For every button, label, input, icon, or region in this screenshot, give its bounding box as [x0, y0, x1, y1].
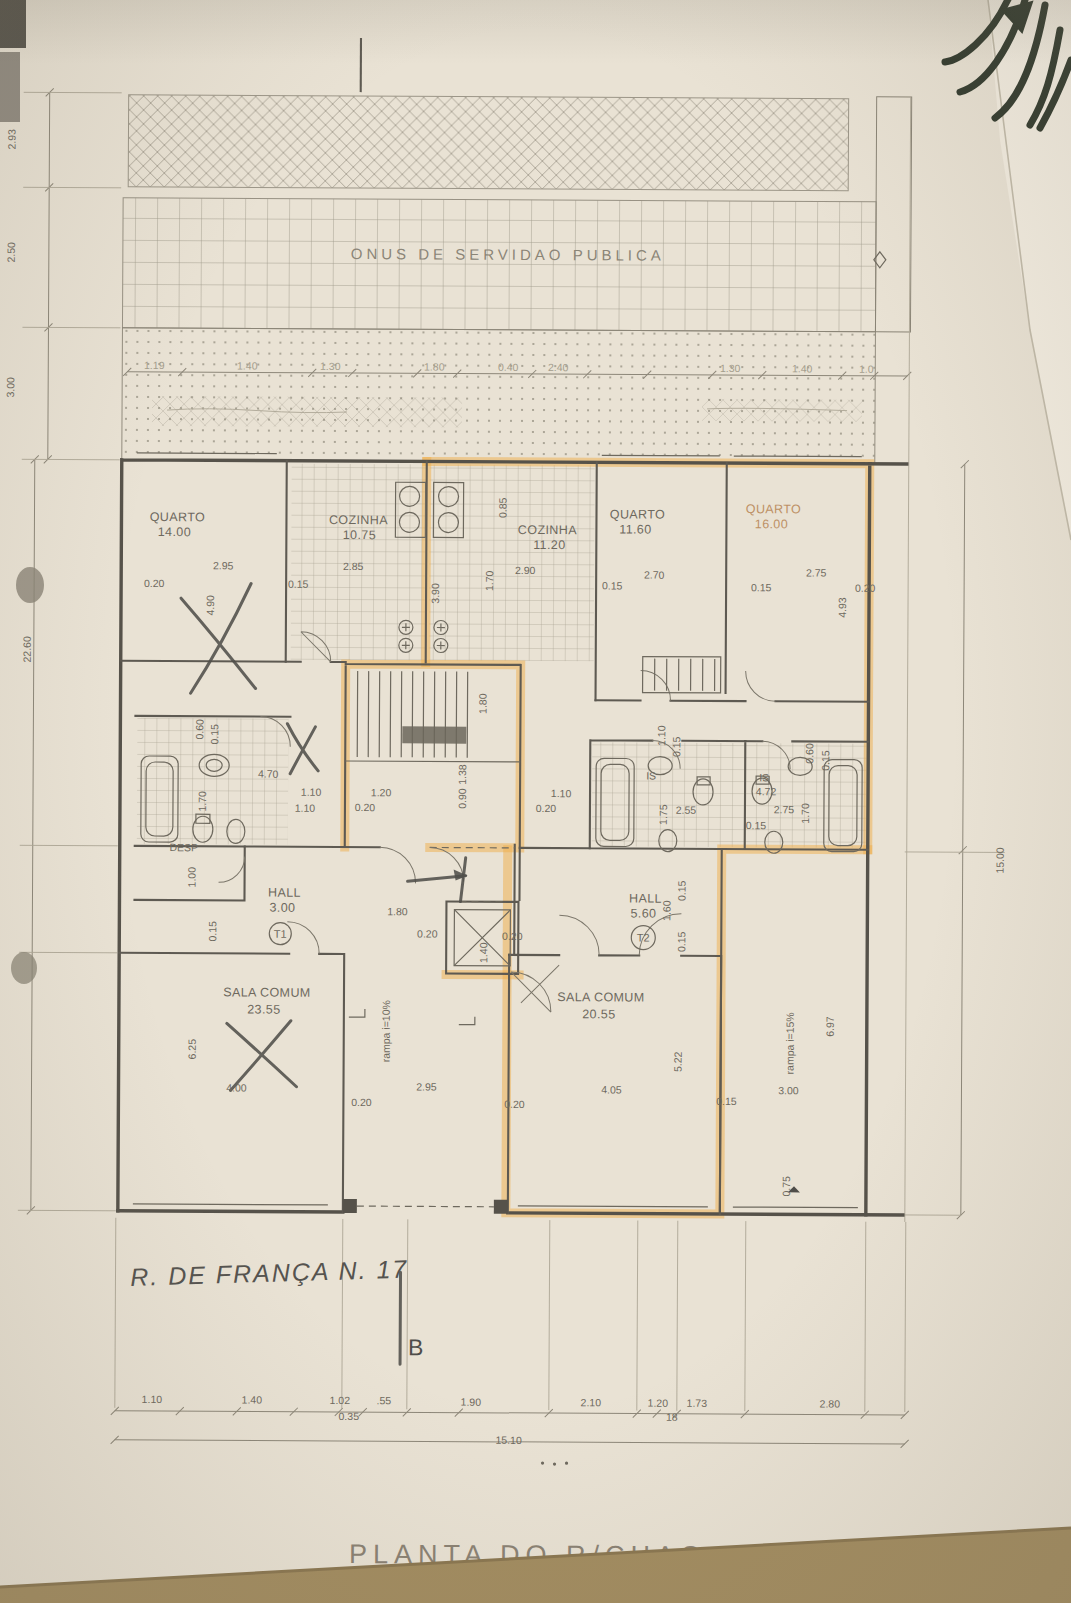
- stair-core: [345, 671, 520, 762]
- dim-label: 1.30: [320, 360, 341, 372]
- dim-label: 0.20: [355, 801, 376, 813]
- dim-label: 3.00: [4, 377, 16, 398]
- room-area: 5.60: [630, 907, 656, 921]
- dim-label: 0.15: [675, 880, 687, 901]
- dim-label: 0.20: [417, 927, 438, 939]
- dim-label: 1.10: [551, 787, 572, 799]
- room-area: 3.00: [269, 901, 295, 915]
- dim-label: 0.20: [855, 582, 876, 594]
- dim-label: 0.15: [716, 1095, 737, 1107]
- room-area: 14.00: [158, 525, 191, 539]
- dim-label: 0.15: [751, 581, 772, 593]
- dim-label: 0.15: [288, 578, 309, 590]
- dim-label: 0.40: [498, 361, 519, 373]
- dim-label: 1.80: [387, 905, 408, 917]
- dim-label: 1.0: [859, 363, 874, 375]
- dim-label: 0.60: [803, 743, 815, 764]
- dim-label: 3.00: [778, 1084, 799, 1096]
- dim-label: 0.15: [675, 931, 687, 952]
- dim-label: 0.20: [536, 802, 557, 814]
- dim-label: 1.90: [461, 1396, 482, 1408]
- room-name: COZINHA: [518, 523, 577, 537]
- room-area: 10.75: [343, 528, 376, 542]
- dim-label: 1.38: [456, 764, 468, 785]
- total-width-dimension: 15.10: [495, 1434, 521, 1446]
- floor-plan-photo: ONUS DE SERVIDAO PUBLICA QUARTO 14.00 CO…: [0, 0, 1071, 1603]
- dim-label: 1.70: [799, 803, 811, 824]
- room-name: QUARTO: [610, 507, 665, 521]
- room-area: 16.00: [755, 517, 788, 531]
- room-area: 20.55: [582, 1007, 615, 1021]
- room-name: DESP: [169, 841, 198, 853]
- dim-label: 0.35: [339, 1410, 360, 1422]
- dim-label: 0.15: [206, 921, 218, 942]
- dim-label: 1.20: [371, 786, 392, 798]
- dim-label: 0.20: [504, 1098, 525, 1110]
- dim-label: 1.00: [186, 867, 198, 888]
- dim-label: 2.10: [581, 1396, 602, 1408]
- dim-label: 1.80: [424, 360, 445, 372]
- dim-label: 0.75: [780, 1176, 792, 1197]
- dim-label: 2.75: [774, 803, 795, 815]
- dim-label: 0.20: [351, 1096, 372, 1108]
- room-name: IS: [646, 770, 656, 782]
- pencil-marks: [177, 583, 469, 1364]
- dim-label: 1.40: [242, 1393, 263, 1405]
- dim-label: 2.40: [548, 361, 569, 373]
- dim-label: 2.55: [676, 804, 697, 816]
- dim-label: 5.22: [672, 1051, 684, 1072]
- dim-label: 2.95: [416, 1080, 437, 1092]
- room-name: SALA COMUM: [557, 990, 644, 1004]
- dim-label: 1.40: [237, 359, 258, 371]
- dim-label: 4.93: [836, 597, 848, 618]
- stray-dots: [541, 1461, 568, 1465]
- ramp-label: rampa i=10%: [380, 1000, 392, 1062]
- dim-label: 1.75: [657, 804, 669, 825]
- dim-label: 1.70: [196, 791, 208, 812]
- dim-label: 0.15: [670, 736, 682, 757]
- ramp-label: rampa i=15%: [784, 1012, 796, 1074]
- street-note: R. DE FRANÇA N. 17: [130, 1255, 409, 1291]
- dim-label: 1.10: [655, 725, 667, 746]
- servitude-bands: [122, 93, 913, 464]
- hole-punch-mark: [16, 567, 44, 603]
- dim-label: 0.90: [456, 788, 468, 809]
- room-name: SALA COMUM: [223, 985, 310, 999]
- corner-object: [0, 52, 20, 122]
- handwritten-notes: R. DE FRANÇA N. 17 B: [129, 1253, 424, 1360]
- room-name: HALL: [268, 886, 301, 900]
- dim-label: 0.20: [502, 930, 523, 942]
- room-area: 23.55: [247, 1002, 280, 1016]
- dim-label: 1.30: [720, 362, 741, 374]
- dim-label: 4.70: [258, 768, 279, 780]
- dim-label: 0.15: [746, 819, 767, 831]
- dim-label: 1.40: [477, 942, 489, 963]
- room-name: HALL: [629, 891, 662, 905]
- dim-label: 2.93: [5, 129, 17, 150]
- dim-label: 1.10: [295, 802, 316, 814]
- dim-label: 1.40: [792, 362, 813, 374]
- room-name: IS: [759, 771, 769, 783]
- dim-label: 1.02: [330, 1394, 351, 1406]
- dim-label: 1.19: [144, 359, 165, 371]
- dim-label: 6.25: [186, 1039, 198, 1060]
- dim-label: 1.10: [301, 786, 322, 798]
- dim-label: 0.15: [602, 579, 623, 591]
- dim-label: 4.05: [601, 1083, 622, 1095]
- dim-label: 2.70: [644, 569, 665, 581]
- dim-label: 2.80: [820, 1397, 841, 1409]
- dim-label: 0.15: [819, 750, 831, 771]
- dim-label: 2.75: [806, 566, 827, 578]
- dim-label: .55: [377, 1394, 392, 1406]
- dim-label: 18: [666, 1411, 678, 1423]
- dim-label: 4.90: [204, 595, 216, 616]
- room-name: QUARTO: [746, 502, 801, 516]
- room-name: COZINHA: [329, 513, 388, 527]
- dim-label: 0.60: [193, 719, 205, 740]
- dim-label: 0.15: [208, 724, 220, 745]
- dim-label: 2.90: [515, 564, 536, 576]
- dim-label: 2.85: [343, 560, 364, 572]
- dim-label: 1.60: [660, 900, 672, 921]
- total-height-dimension: 15.00: [994, 847, 1006, 873]
- dim-label: 1.73: [687, 1397, 708, 1409]
- left-height-dimension: 22.60: [21, 636, 33, 662]
- room-area: 11.60: [619, 522, 651, 536]
- hole-punch-mark: [11, 952, 37, 984]
- corner-object: [0, 0, 26, 48]
- servitude-band-label: ONUS DE SERVIDAO PUBLICA: [351, 245, 665, 264]
- dim-label: 1.80: [476, 693, 488, 714]
- dim-label: 0.20: [144, 577, 165, 589]
- second-sheet-edge: [988, 0, 1071, 540]
- dim-label: 0.85: [496, 497, 508, 518]
- section-marker: B: [408, 1334, 423, 1360]
- room-area: 4.72: [756, 785, 777, 797]
- dim-label: 3.90: [429, 583, 441, 604]
- dim-label: 1.70: [483, 570, 495, 591]
- dim-label: 1.20: [648, 1397, 669, 1409]
- dim-label: 1.10: [142, 1393, 163, 1405]
- dim-label: 4.00: [226, 1081, 247, 1093]
- dim-label: 6.97: [824, 1016, 836, 1037]
- floor-plan-drawing: ONUS DE SERVIDAO PUBLICA QUARTO 14.00 CO…: [0, 0, 1071, 1603]
- room-area: 11.20: [533, 538, 565, 552]
- dim-label: 2.95: [213, 559, 234, 571]
- room-name: QUARTO: [150, 510, 205, 524]
- dim-label: 2.50: [5, 242, 17, 263]
- unit-label: T1: [274, 928, 287, 940]
- unit-label: T2: [637, 932, 650, 944]
